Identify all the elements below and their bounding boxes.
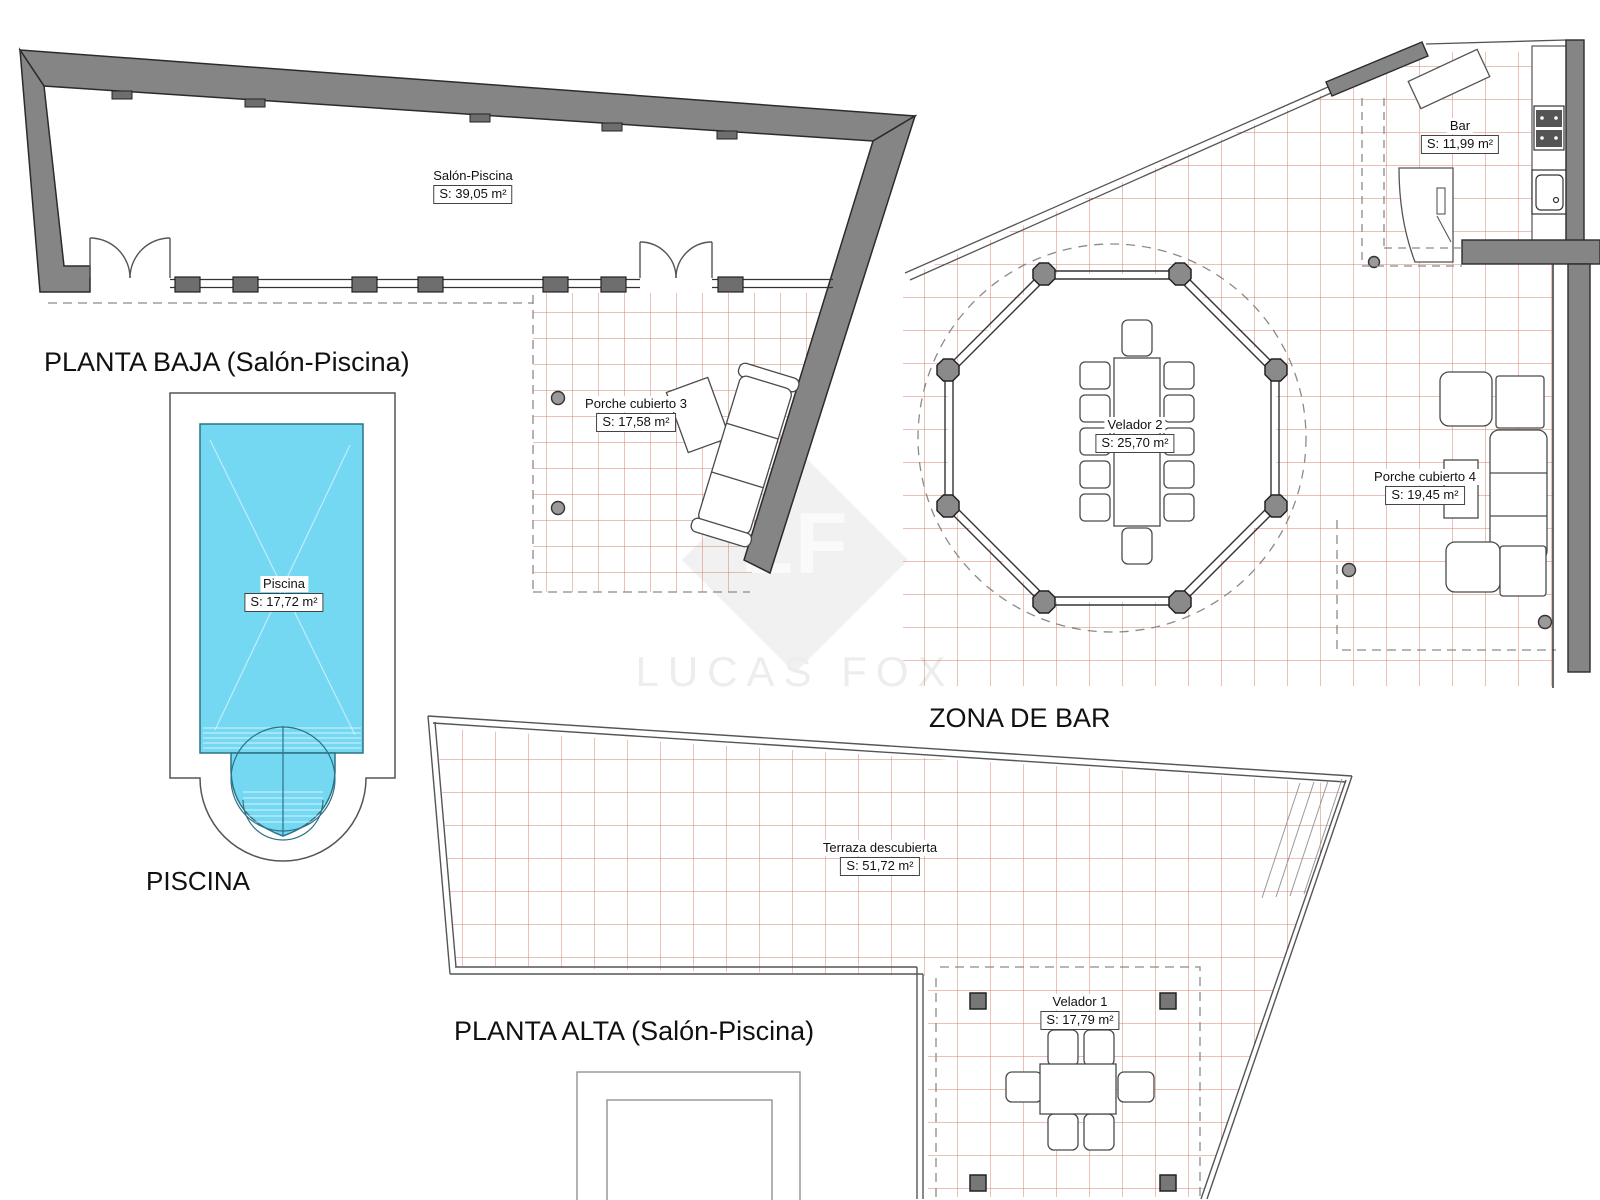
room-name: Velador 1 bbox=[1050, 994, 1111, 1010]
velador2-label: Velador 2 S: 25,70 m² bbox=[1095, 417, 1174, 453]
stove-icon bbox=[1534, 106, 1564, 150]
salon-piscina-label: Salón-Piscina S: 39,05 m² bbox=[430, 168, 516, 204]
planta-baja-plan bbox=[20, 50, 915, 592]
room-name: Porche cubierto 4 bbox=[1371, 469, 1479, 485]
sink-icon bbox=[1532, 170, 1567, 214]
planta-alta-plan bbox=[428, 716, 1352, 1200]
porche3-label: Porche cubierto 3 S: 17,58 m² bbox=[582, 396, 690, 432]
porche4-label: Porche cubierto 4 S: 19,45 m² bbox=[1371, 469, 1479, 505]
piscina-title: PISCINA bbox=[146, 866, 250, 897]
terraza-label: Terraza descubierta S: 51,72 m² bbox=[820, 840, 940, 876]
room-area: S: 17,58 m² bbox=[596, 413, 675, 431]
planta-alta-title: PLANTA ALTA (Salón-Piscina) bbox=[454, 1016, 814, 1047]
piscina-label: Piscina S: 17,72 m² bbox=[244, 576, 323, 612]
planta-baja-title: PLANTA BAJA (Salón-Piscina) bbox=[44, 347, 410, 378]
room-area: S: 19,45 m² bbox=[1385, 486, 1464, 504]
room-area: S: 17,72 m² bbox=[244, 593, 323, 611]
room-area: S: 51,72 m² bbox=[840, 857, 919, 875]
french-door-1 bbox=[90, 238, 170, 278]
french-door-2 bbox=[640, 242, 712, 278]
piscina-plan bbox=[170, 393, 395, 861]
stairwell-outline bbox=[577, 1072, 800, 1200]
room-name: Salón-Piscina bbox=[430, 168, 516, 184]
room-area: S: 39,05 m² bbox=[433, 185, 512, 203]
room-area: S: 25,70 m² bbox=[1095, 434, 1174, 452]
zona-bar-title: ZONA DE BAR bbox=[929, 703, 1111, 734]
floorplan-page: LF LUCAS FOX bbox=[0, 0, 1600, 1200]
room-name: Terraza descubierta bbox=[820, 840, 940, 856]
room-area: S: 11,99 m² bbox=[1421, 135, 1499, 153]
bar-label: Bar S: 11,99 m² bbox=[1421, 118, 1499, 154]
room-name: Piscina bbox=[260, 576, 308, 592]
terraza-tiled-floor bbox=[437, 728, 1344, 1197]
room-name: Velador 2 bbox=[1105, 417, 1166, 433]
room-name: Porche cubierto 3 bbox=[582, 396, 690, 412]
room-area: S: 17,79 m² bbox=[1040, 1011, 1119, 1029]
room-name: Bar bbox=[1447, 118, 1473, 134]
velador1-label: Velador 1 S: 17,79 m² bbox=[1040, 994, 1119, 1030]
